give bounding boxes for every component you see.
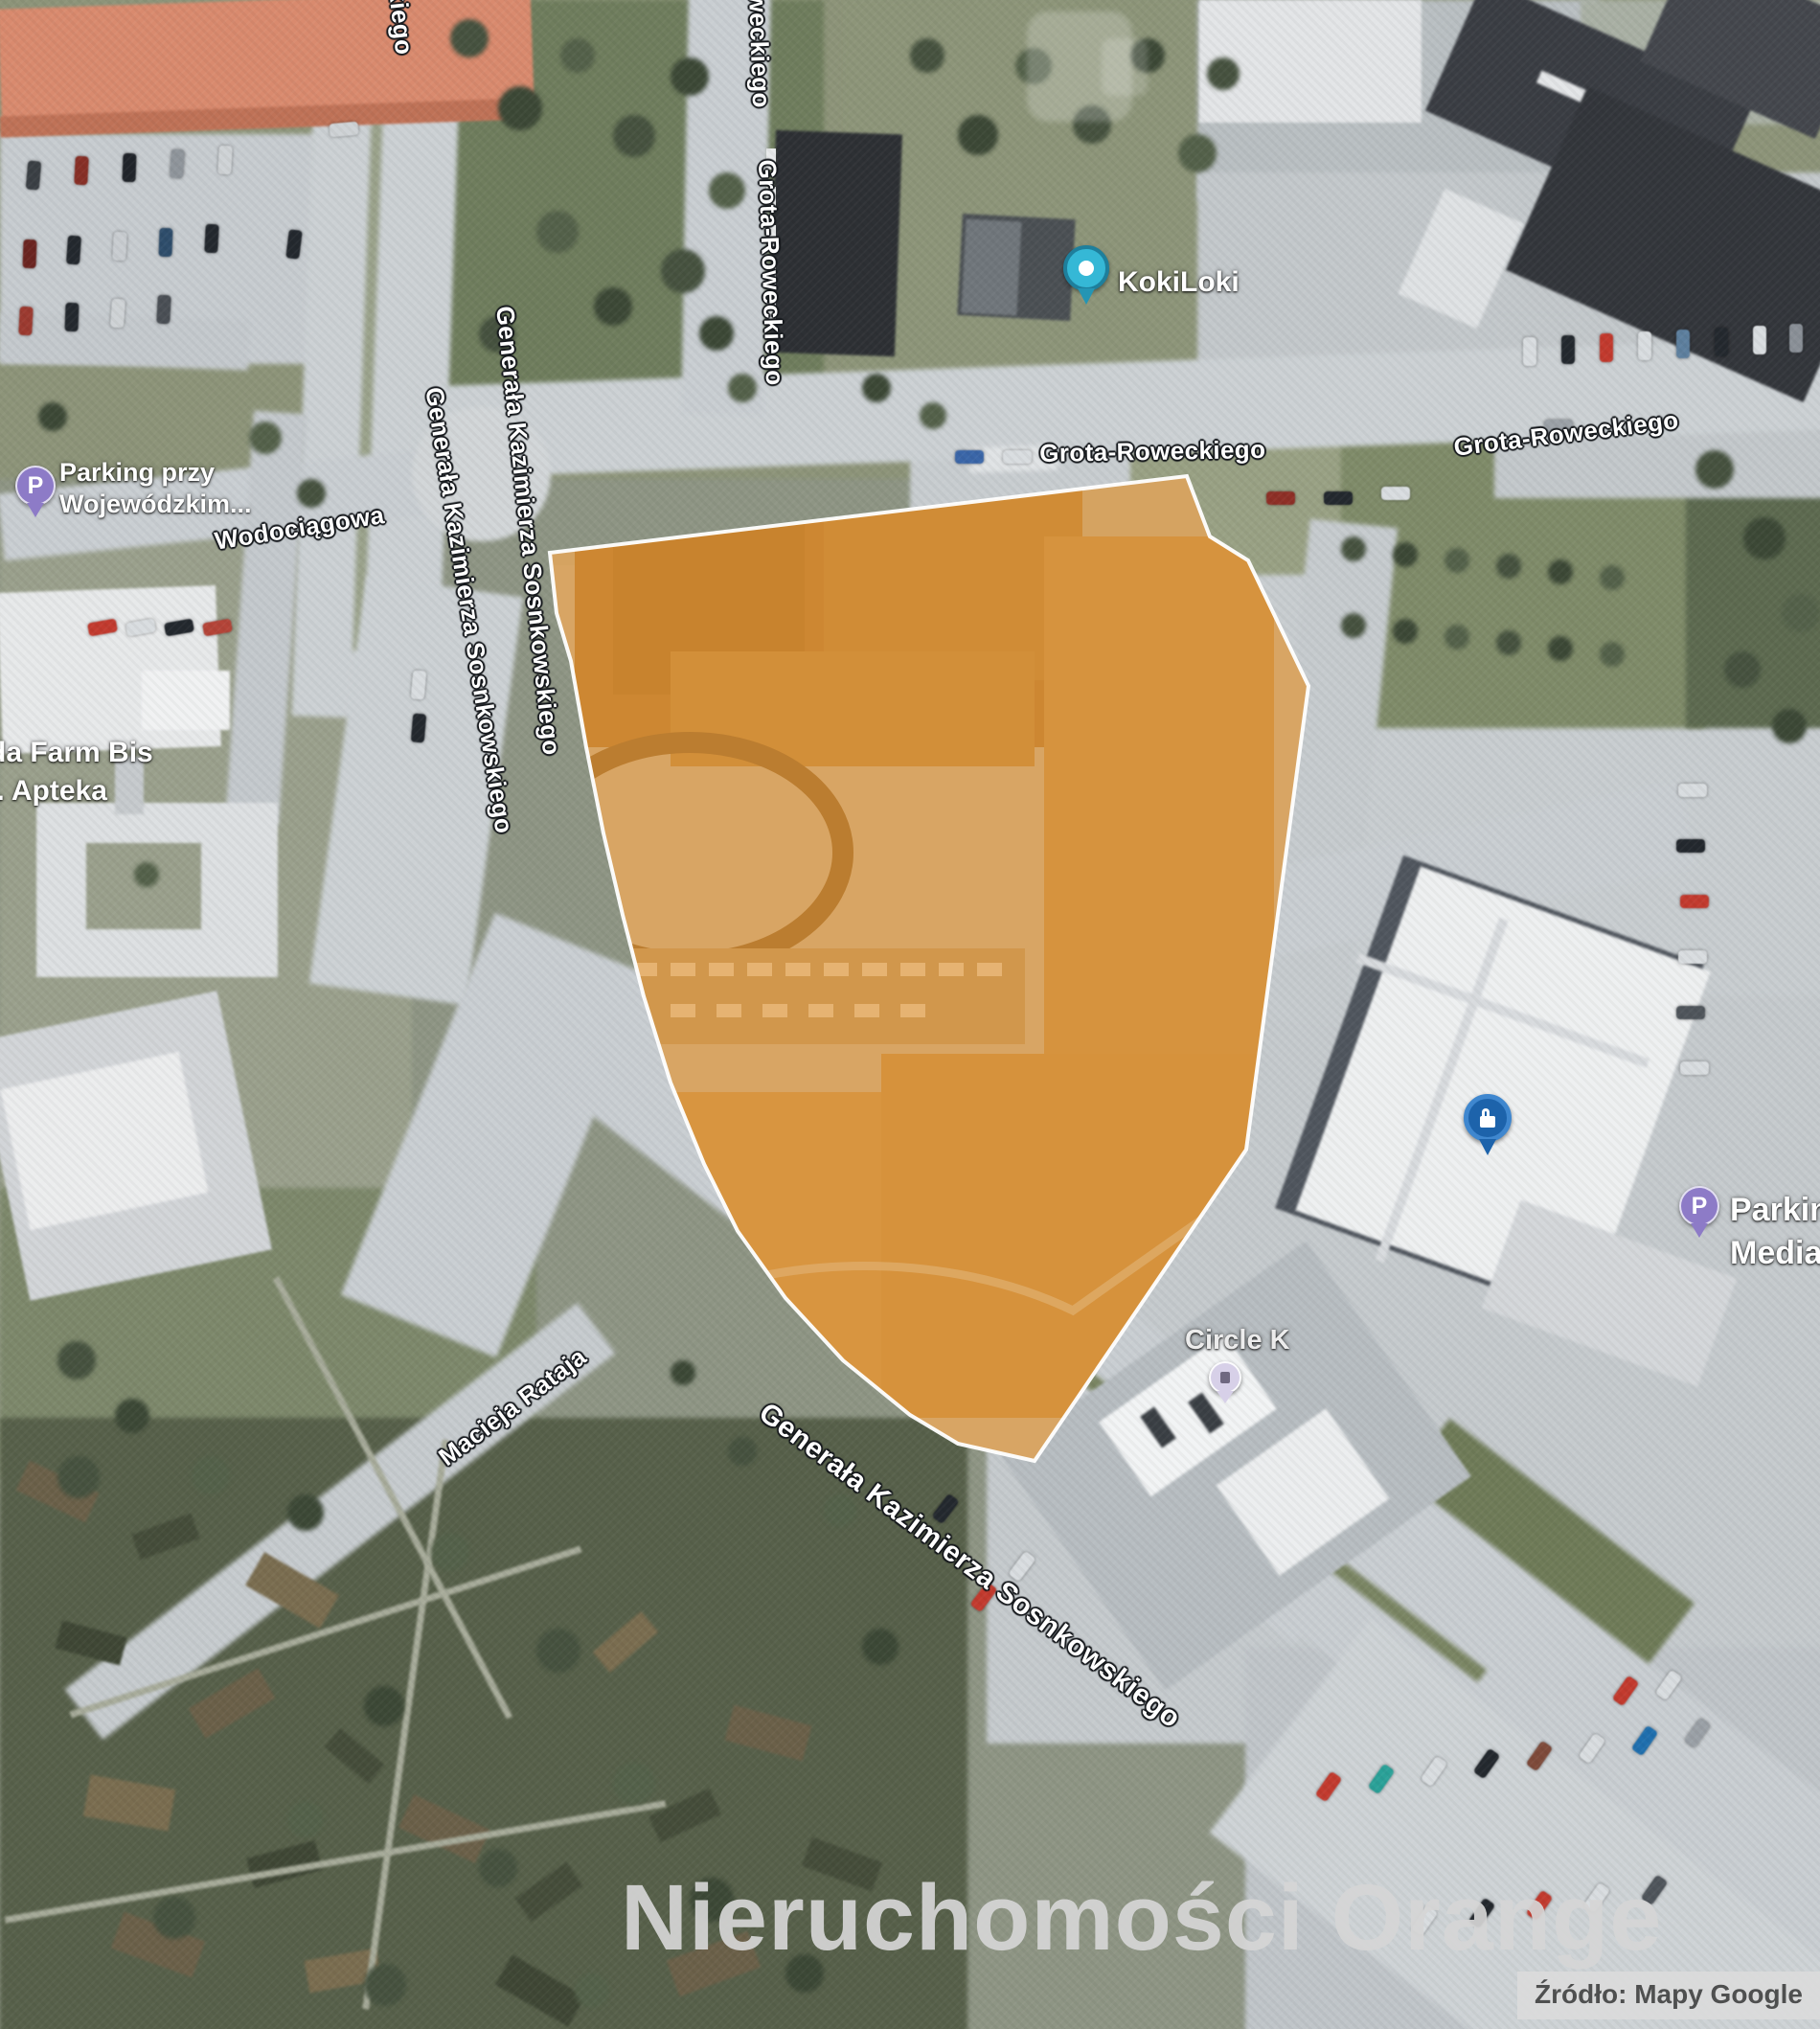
kokiloki-pin[interactable] — [1063, 245, 1109, 305]
nieruchomosci-orange-watermark: Nieruchomości Orange — [621, 1864, 1662, 1972]
street-label-partial-sosnkowskiego: kiego — [382, 0, 419, 57]
dot-icon — [1079, 261, 1094, 276]
parking-pin[interactable]: P — [15, 466, 56, 517]
street-label-partial-roweckiego: weckiego — [742, 0, 776, 108]
poi-label-circle-k[interactable]: Circle K — [1185, 1325, 1290, 1356]
fuel-icon — [1220, 1372, 1230, 1383]
satellite-map[interactable]: kiego weckiego Grota-Roweckiego Grota-Ro… — [0, 0, 1820, 2029]
parking-icon: P — [28, 472, 44, 500]
property-highlight-polygon — [550, 476, 1308, 1461]
poi-label-parking-wojewodzki[interactable]: Parking przy Wojewódzkim... — [59, 457, 252, 520]
property-overlay — [0, 0, 1820, 2029]
store-pin[interactable] — [1464, 1094, 1512, 1155]
poi-text: Parking przy — [59, 458, 215, 487]
circle-k-pin[interactable] — [1209, 1361, 1241, 1403]
poi-text: da Farm Bis — [0, 737, 153, 768]
poi-label-parking-media[interactable]: Parking Media — [1730, 1189, 1820, 1275]
lock-icon — [1480, 1116, 1495, 1128]
poi-text: Media — [1730, 1232, 1820, 1275]
poi-label-kokiloki[interactable]: KokiLoki — [1118, 266, 1240, 299]
poi-label-pharmacy[interactable]: da Farm Bis j. Apteka — [0, 734, 153, 810]
parking-icon: P — [1692, 1193, 1708, 1220]
street-label-grota-roweckiego-center: Grota-Roweckiego — [1039, 435, 1266, 468]
poi-text: Parking — [1730, 1192, 1820, 1228]
map-source-attribution: Źródło: Mapy Google — [1517, 1972, 1820, 2019]
poi-text: Wojewódzkim... — [59, 489, 252, 520]
poi-text: j. Apteka — [0, 772, 153, 810]
media-parking-pin[interactable]: P — [1679, 1186, 1719, 1238]
